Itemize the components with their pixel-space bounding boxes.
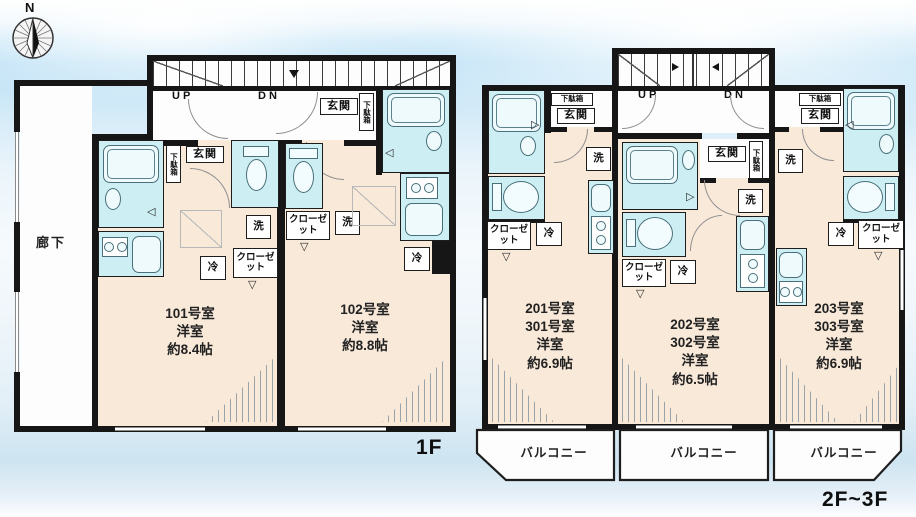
wall [14, 222, 20, 292]
unit-201-label: 201号室 301号室 洋室 約6.9帖 [504, 301, 596, 372]
closet-label: クローゼット [858, 220, 904, 249]
genkan-label: 玄関 [801, 108, 839, 124]
unit-102-label: 102号室 洋室 約8.8帖 [312, 302, 418, 355]
wall [612, 91, 618, 424]
wall [775, 127, 789, 132]
unit-202-size: 約6.5帖 [672, 372, 718, 388]
window [900, 250, 904, 310]
corridor-area [20, 86, 92, 426]
stove [779, 281, 803, 303]
wall [612, 133, 702, 139]
fridge-label: 冷 [536, 222, 562, 246]
toilet-bowl [503, 181, 539, 213]
floor-caption-2f3f: 2F~3F [822, 488, 888, 512]
bath-door-mark: ◁ [147, 207, 155, 218]
stair-arrow-icon [712, 63, 719, 71]
toilet-bowl [847, 181, 883, 213]
balcony-label: バルコニー [652, 442, 756, 461]
wall [769, 91, 775, 424]
bath-door-mark: ▷ [531, 120, 539, 131]
bathtub [387, 93, 445, 127]
closet-door-mark: ▽ [636, 289, 644, 300]
unit-203-number: 203号室 [814, 301, 864, 317]
unit-303-number: 303号室 [814, 319, 864, 335]
toilet-tank [289, 148, 318, 159]
washer-label: 洗 [778, 149, 803, 173]
stair-diagonal [153, 61, 223, 86]
unit-201-number: 201号室 [525, 301, 575, 317]
genkan-label: 玄関 [320, 98, 358, 115]
bathtub [847, 92, 895, 130]
unit-203-label: 203号室 303号室 洋室 約6.9帖 [792, 301, 886, 372]
unit-101-type: 洋室 [177, 324, 204, 340]
window [115, 427, 205, 431]
closet-label: クローゼット [622, 259, 666, 287]
stair-diagonal [727, 54, 769, 86]
getabako-label: 下駄箱 [166, 145, 181, 183]
unit-102-size: 約8.8帖 [342, 338, 388, 354]
stair-arrow-icon [289, 70, 299, 78]
window [15, 132, 19, 222]
unit-301-number: 301号室 [525, 319, 575, 335]
washer-label: 洗 [246, 215, 271, 239]
wall [14, 372, 20, 432]
floor-hatch-square [352, 186, 396, 226]
toilet-tank [492, 183, 502, 211]
toilet-bowl [637, 217, 673, 250]
closet-door-mark: ▽ [874, 251, 882, 262]
bath-door-mark: ◁ [845, 120, 853, 131]
fridge-label: 冷 [404, 247, 430, 271]
getabako-label: 下駄箱 [551, 93, 593, 106]
closet-label: クローゼット [487, 221, 531, 250]
toilet-tank [626, 219, 636, 247]
stove [406, 177, 438, 199]
stair-diagonal [395, 61, 450, 86]
bathtub [626, 146, 678, 184]
unit-302-number: 302号室 [670, 335, 720, 351]
unit-202-number: 202号室 [670, 317, 720, 333]
compass-icon [8, 13, 58, 63]
window [15, 292, 19, 372]
closet-label: クローゼット [233, 248, 278, 278]
floor-hatch-square [180, 210, 222, 248]
getabako-label: 下駄箱 [359, 93, 374, 131]
wall [14, 80, 153, 86]
unit-201-size: 約6.9帖 [527, 356, 573, 372]
bath-sink [879, 134, 894, 154]
closet-door-mark: ▽ [248, 280, 256, 291]
wall [14, 80, 20, 132]
unit-101-label: 101号室 洋室 約8.4帖 [138, 306, 242, 359]
stove [102, 237, 128, 257]
stove [740, 254, 765, 288]
washer-label: 洗 [586, 147, 611, 171]
toilet-tank [885, 183, 895, 211]
getabako-label: 下駄箱 [749, 141, 763, 179]
closet-door-mark: ▽ [300, 242, 308, 253]
unit-203-type: 洋室 [826, 337, 853, 353]
unit-102-type: 洋室 [352, 320, 379, 336]
bath-sink [682, 150, 695, 170]
getabako-label: 下駄箱 [799, 93, 841, 106]
unit-202-type: 洋室 [682, 353, 709, 369]
genkan-label: 玄関 [186, 146, 224, 163]
bath-sink [426, 131, 442, 151]
unit-203-size: 約6.9帖 [816, 356, 862, 372]
stair-center-line [692, 54, 694, 86]
closet-label: クローゼット [286, 211, 330, 240]
balcony-label: バルコニー [798, 442, 890, 461]
window [298, 427, 386, 431]
wall [432, 240, 454, 274]
bath-sink [105, 188, 121, 210]
floor-caption-1f: 1F [416, 436, 443, 460]
unit-102-number: 102号室 [340, 302, 390, 318]
kitchen-sink [132, 236, 161, 273]
wall [14, 426, 456, 432]
stair-diagonal [618, 54, 660, 86]
bath-door-mark: ▷ [686, 192, 694, 203]
unit-201-type: 洋室 [537, 337, 564, 353]
washer-label: 洗 [738, 189, 763, 213]
stove [591, 216, 611, 250]
floorplan-page: N UP DN 廊下 [0, 0, 916, 517]
closet-door-mark: ▽ [502, 252, 510, 263]
stair-arrow-icon [672, 63, 679, 71]
unit-202-label: 202号室 302号室 洋室 約6.5帖 [648, 317, 742, 388]
fridge-label: 冷 [670, 260, 696, 284]
fridge-label: 冷 [828, 222, 854, 246]
wall [594, 127, 612, 132]
bath-door-mark: ◁ [385, 148, 393, 159]
toilet-bowl [246, 159, 267, 191]
bath-sink [520, 136, 536, 156]
wall [769, 48, 775, 91]
window [483, 298, 487, 360]
balcony-label: バルコニー [506, 442, 602, 461]
unit-101-size: 約8.4帖 [167, 342, 213, 358]
genkan-label: 玄関 [557, 108, 595, 124]
kitchen-sink [591, 184, 611, 212]
fridge-label: 冷 [200, 256, 226, 280]
kitchen-sink [405, 203, 443, 236]
kitchen-sink [740, 220, 765, 250]
toilet-tank [243, 146, 269, 157]
bathtub [103, 145, 159, 183]
unit-101-number: 101号室 [165, 306, 215, 322]
genkan-label: 玄関 [708, 146, 746, 162]
corridor-label: 廊下 [36, 232, 66, 251]
kitchen-sink [779, 252, 803, 278]
toilet-bowl [293, 161, 314, 193]
